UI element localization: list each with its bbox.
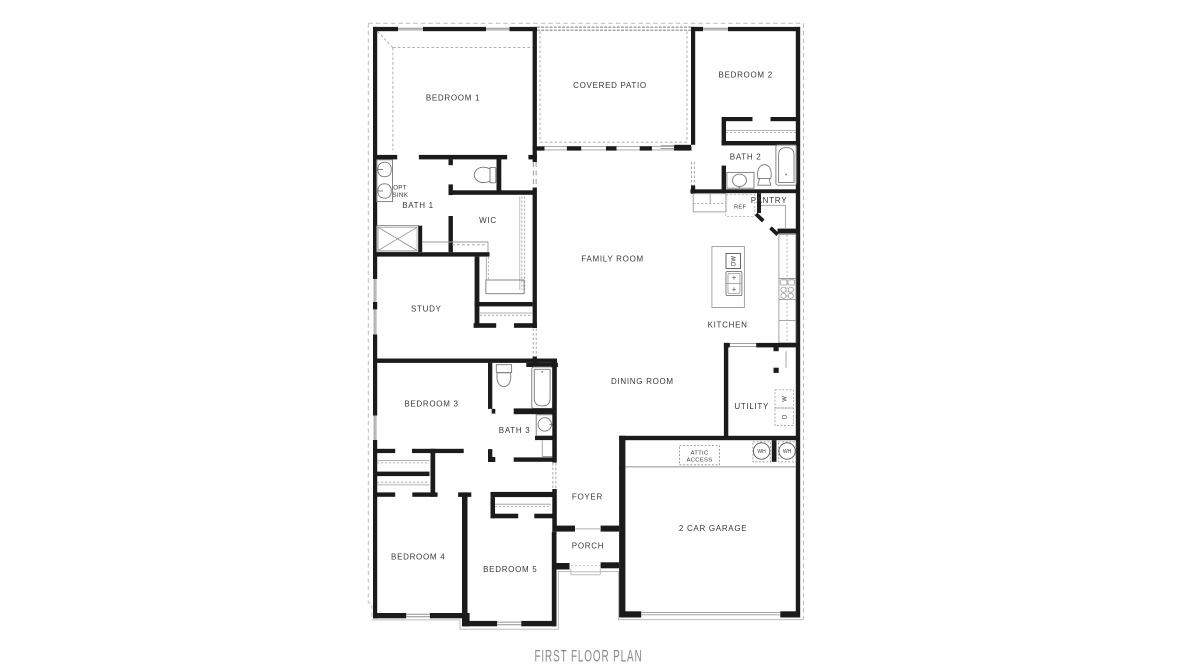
svg-text:W: W <box>782 396 788 402</box>
svg-text:2 CAR GARAGE: 2 CAR GARAGE <box>679 524 747 533</box>
svg-text:UTILITY: UTILITY <box>734 402 769 411</box>
svg-text:BEDROOM 2: BEDROOM 2 <box>719 70 773 79</box>
svg-text:D: D <box>782 414 788 419</box>
svg-text:DINING ROOM: DINING ROOM <box>611 377 674 386</box>
svg-text:FOYER: FOYER <box>572 493 603 502</box>
svg-text:FIRST FLOOR PLAN: FIRST FLOOR PLAN <box>535 646 643 665</box>
svg-text:BEDROOM 1: BEDROOM 1 <box>426 93 480 102</box>
svg-text:BEDROOM 4: BEDROOM 4 <box>391 553 445 562</box>
svg-text:DW: DW <box>731 256 737 266</box>
svg-text:STUDY: STUDY <box>411 304 442 313</box>
svg-text:WH: WH <box>757 449 766 455</box>
svg-text:WH: WH <box>783 449 792 455</box>
svg-text:REF: REF <box>734 204 747 210</box>
svg-text:OPT: OPT <box>393 185 407 192</box>
svg-text:PORCH: PORCH <box>572 542 604 551</box>
svg-text:BEDROOM 3: BEDROOM 3 <box>404 400 458 409</box>
svg-text:WIC: WIC <box>479 216 497 225</box>
svg-text:FAMILY ROOM: FAMILY ROOM <box>581 255 644 264</box>
svg-text:SINK: SINK <box>392 192 408 199</box>
svg-text:BATH 1: BATH 1 <box>402 201 434 210</box>
svg-text:BATH 3: BATH 3 <box>499 426 531 435</box>
svg-text:ATTIC: ATTIC <box>690 451 709 457</box>
svg-text:PANTRY: PANTRY <box>751 196 788 205</box>
svg-text:KITCHEN: KITCHEN <box>708 321 748 330</box>
svg-text:BATH 2: BATH 2 <box>730 153 762 162</box>
svg-text:ACCESS: ACCESS <box>686 458 712 464</box>
svg-text:BEDROOM 5: BEDROOM 5 <box>483 565 537 574</box>
svg-text:COVERED PATIO: COVERED PATIO <box>573 81 647 90</box>
